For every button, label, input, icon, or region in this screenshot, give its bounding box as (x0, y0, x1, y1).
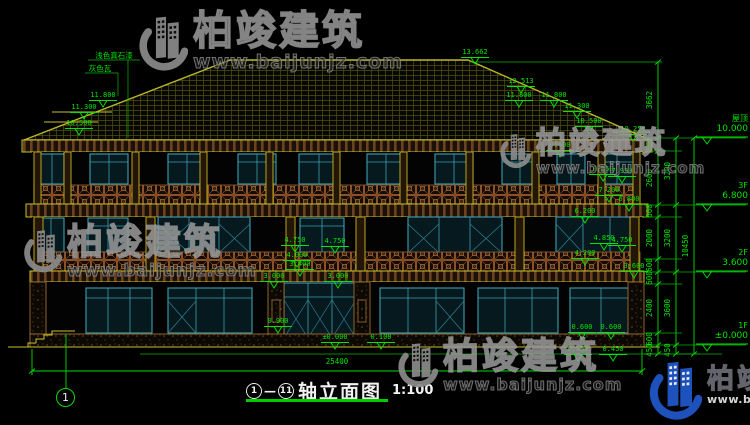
elevation-drawing (0, 0, 750, 425)
mid-eave-band (26, 204, 648, 217)
title-underline (246, 399, 388, 402)
level-marker-2f: 2F 3.600 (696, 248, 748, 279)
level-label: 屋顶 (696, 114, 748, 124)
level-symbol-icon (696, 136, 748, 145)
entrance-doors (284, 283, 356, 338)
cad-elevation-canvas: 13.66212.51311.80011.80011.30010.50010.2… (0, 0, 750, 425)
drawing-title: 1 — 11 轴立面图 1:100 (246, 377, 433, 404)
level-marker-roof: 屋顶 10.000 (696, 114, 748, 145)
level-value: 3.600 (696, 258, 748, 269)
level-value: 6.800 (696, 191, 748, 202)
main-eave-band (22, 140, 652, 152)
axis-range-dash: — (264, 384, 276, 398)
level-label: 3F (696, 181, 748, 191)
plinth (30, 334, 644, 347)
level-label: 2F (696, 248, 748, 258)
axis-circle-end: 11 (278, 383, 294, 399)
drawing-scale: 1:100 (392, 383, 433, 398)
level-value: 10.000 (696, 124, 748, 135)
hip-roof (24, 60, 650, 140)
second-floor-railing (34, 252, 640, 271)
axis-bubble-label: 1 (62, 391, 69, 404)
level-label: 1F (696, 321, 748, 331)
second-floor-slab-band (30, 271, 644, 282)
level-marker-3f: 3F 6.800 (696, 181, 748, 212)
level-marker-1f: 1F ±0.000 (696, 321, 748, 352)
level-symbol-icon (696, 343, 748, 352)
level-value: ±0.000 (696, 331, 748, 342)
level-symbol-icon (696, 203, 748, 212)
axis-bubble: 1 (56, 388, 75, 407)
axis-circle-start: 1 (246, 383, 262, 399)
level-symbol-icon (696, 270, 748, 279)
